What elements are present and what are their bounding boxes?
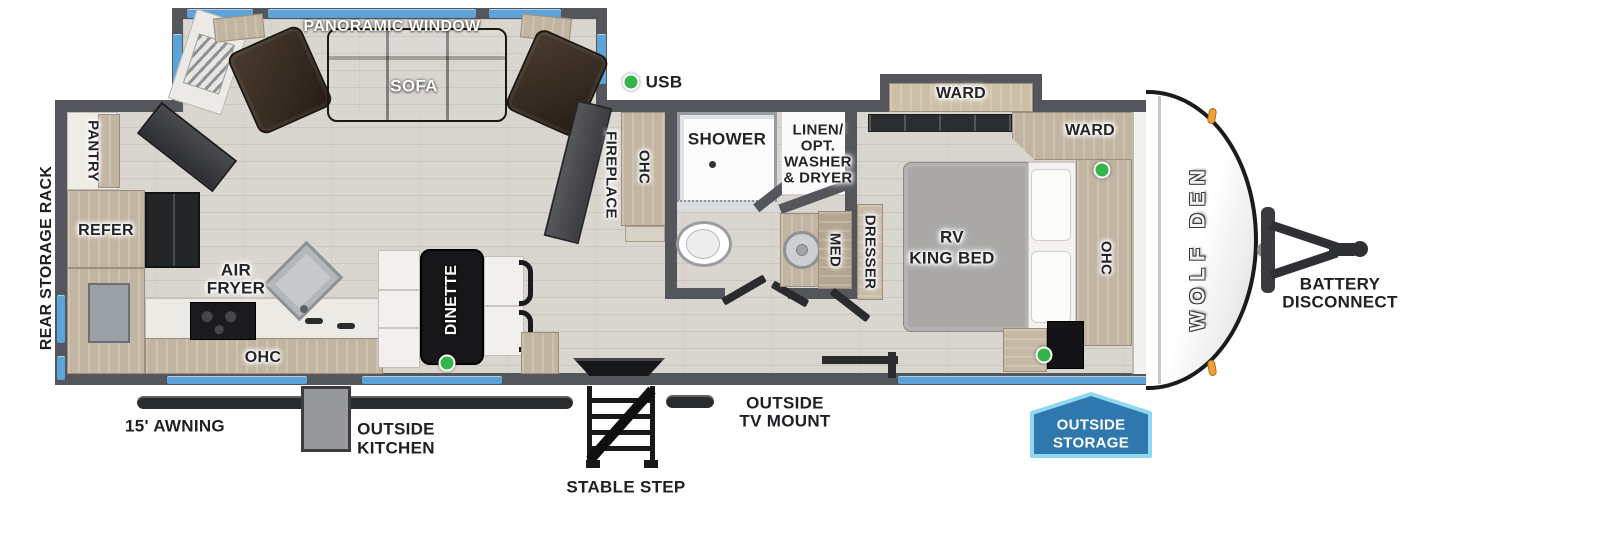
panoramic-window-label: PANORAMIC WINDOW bbox=[304, 19, 481, 35]
rv-floorplan-canvas: PANORAMIC WINDOW SOFA USB PANTRY REFER A… bbox=[0, 0, 1600, 541]
shower bbox=[677, 112, 777, 207]
outside-kitchen-label-line2: KITCHEN bbox=[357, 440, 435, 457]
dinette-cushions-right bbox=[484, 256, 524, 356]
living-ohc-base bbox=[625, 226, 665, 242]
air-fryer-label-line2: FRYER bbox=[207, 280, 266, 297]
shower-label: SHOWER bbox=[688, 131, 766, 148]
linen-label-line2: OPT. bbox=[801, 139, 836, 154]
dinette-chair-1 bbox=[519, 260, 533, 306]
clearance-light-bottom bbox=[1207, 359, 1218, 376]
bottom-window-bedroom bbox=[898, 376, 1150, 384]
corner-ward-label: WARD bbox=[1065, 123, 1115, 139]
usb-indicator-bed-head bbox=[1094, 162, 1111, 179]
outside-tv-label-line2: TV MOUNT bbox=[739, 413, 830, 430]
dresser-label: DRESSER bbox=[863, 215, 878, 290]
bedroom-ohc-label: OHC bbox=[1099, 241, 1114, 275]
dinette-label: DINETTE bbox=[444, 265, 460, 336]
ward-slide-label: WARD bbox=[936, 86, 986, 102]
bedroom-tv-cabinet bbox=[1047, 321, 1084, 369]
outside-tv-bracket-arm bbox=[888, 352, 896, 378]
bottom-window-dinette bbox=[362, 376, 502, 384]
grab-handle bbox=[666, 395, 714, 408]
air-fryer-label-line1: AIR bbox=[221, 262, 251, 279]
rear-storage-rack-label: REAR STORAGE RACK bbox=[39, 166, 55, 350]
usb-label: USB bbox=[646, 74, 683, 91]
ward-slide-top-wall bbox=[880, 74, 1042, 83]
outside-tv-bracket-bar bbox=[822, 356, 898, 364]
counter-handle-2 bbox=[337, 323, 355, 329]
ward-slide-right-wall bbox=[1033, 74, 1042, 112]
linen-label-line4: & DRYER bbox=[783, 171, 852, 186]
ward-slide-left-wall bbox=[880, 74, 889, 112]
sofa-label: SOFA bbox=[390, 78, 438, 95]
kitchen-counter-top bbox=[145, 298, 383, 340]
usb-indicator-bed-foot bbox=[1036, 347, 1053, 364]
bed-label-line2: KING BED bbox=[909, 250, 995, 267]
slide-window-top-2 bbox=[268, 9, 476, 18]
stable-step-label: STABLE STEP bbox=[566, 479, 685, 496]
pantry-label: PANTRY bbox=[86, 120, 101, 182]
bedroom-window-shade bbox=[868, 114, 1012, 132]
outside-tv-label-line1: OUTSIDE bbox=[746, 395, 824, 412]
rear-window-upper bbox=[57, 295, 65, 343]
rear-window-lower bbox=[57, 356, 65, 380]
outside-kitchen-label-line1: OUTSIDE bbox=[357, 421, 435, 438]
outside-kitchen-box bbox=[301, 386, 351, 452]
bed-mattress bbox=[903, 162, 1030, 332]
bed-pillow-1 bbox=[1031, 169, 1071, 241]
top-wall-front-segment bbox=[1034, 100, 1154, 112]
sink-faucet bbox=[300, 305, 308, 313]
usb-indicator-legend bbox=[623, 74, 640, 91]
kitchen-ohc-label: OHC bbox=[245, 350, 281, 366]
shower-drain bbox=[709, 161, 716, 168]
cooktop bbox=[190, 302, 256, 340]
bottom-window-kitchen bbox=[167, 376, 307, 384]
refer-label: REFER bbox=[78, 223, 134, 239]
usb-indicator-dinette bbox=[439, 355, 456, 372]
battery-disconnect-label-line1: BATTERY bbox=[1300, 276, 1380, 293]
dinette-bench bbox=[378, 250, 420, 368]
bath-left-wall bbox=[665, 112, 677, 299]
counter-handle-1 bbox=[305, 318, 323, 324]
outside-storage-label-line1: OUTSIDE bbox=[1057, 418, 1126, 433]
awning-label: 15' AWNING bbox=[125, 418, 225, 435]
top-wall-center-segment bbox=[597, 100, 888, 112]
toilet-seat bbox=[686, 229, 720, 259]
linen-label-line1: LINEN/ bbox=[793, 123, 844, 138]
refrigerator bbox=[145, 192, 200, 268]
sofa bbox=[327, 28, 507, 122]
battery-disconnect-label-line2: DISCONNECT bbox=[1282, 294, 1397, 311]
outside-storage-label-line2: STORAGE bbox=[1053, 436, 1129, 451]
med-label: MED bbox=[828, 233, 843, 267]
fireplace-label: FIREPLACE bbox=[604, 131, 619, 219]
living-ohc-label: OHC bbox=[637, 150, 652, 184]
front-cap-seam bbox=[1158, 96, 1161, 384]
bath-sink-drain bbox=[796, 244, 808, 256]
stable-step-ladder bbox=[586, 386, 658, 468]
awning-bar bbox=[137, 396, 573, 409]
bath-bottom-wall-left bbox=[665, 288, 725, 299]
brand-logo: WOLF DEN bbox=[1188, 163, 1209, 331]
bed-pillow-2 bbox=[1031, 251, 1071, 323]
linen-label-line3: WASHER bbox=[784, 155, 852, 170]
bed-label-line1: RV bbox=[940, 229, 964, 246]
kitchen-appliance-gray bbox=[88, 283, 130, 343]
cabinet-by-door bbox=[521, 332, 559, 374]
